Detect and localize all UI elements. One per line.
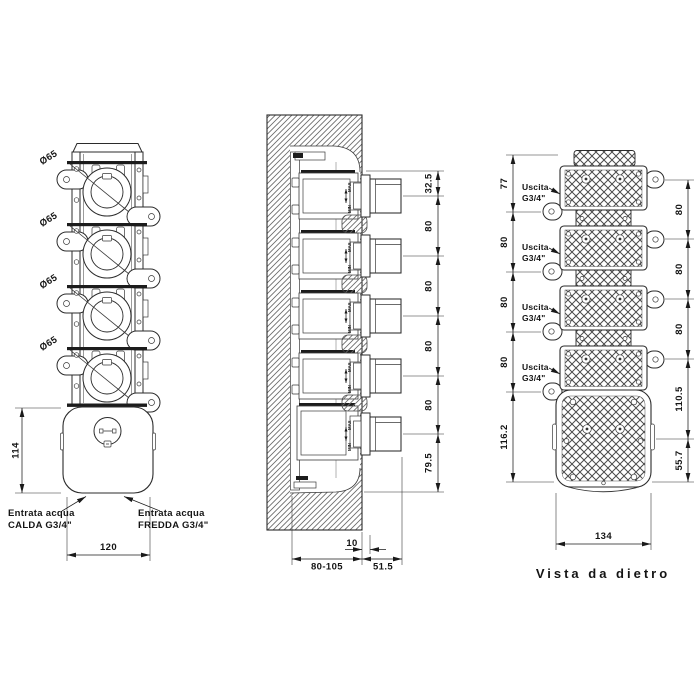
svg-text:G3/4": G3/4" <box>522 193 545 203</box>
svg-text:51.5: 51.5 <box>373 562 393 573</box>
svg-text:116.2: 116.2 <box>499 424 510 449</box>
svg-text:MIN: MIN <box>347 265 352 273</box>
svg-text:80: 80 <box>499 356 510 367</box>
drawing-page: Ø65 Ø65 Ø65 Ø65 114 120 Entrata acqua CA… <box>0 0 700 700</box>
svg-text:134: 134 <box>595 531 612 542</box>
svg-text:MIN: MIN <box>347 443 352 451</box>
svg-text:80: 80 <box>424 340 435 351</box>
rear-body <box>543 151 664 492</box>
svg-text:110.5: 110.5 <box>674 386 685 412</box>
valve-internals <box>291 152 362 490</box>
svg-text:32.5: 32.5 <box>424 173 435 193</box>
svg-text:80: 80 <box>424 280 435 291</box>
svg-text:MAX: MAX <box>347 362 352 372</box>
dimension-114: 114 <box>11 408 62 493</box>
thermostat-body-front <box>61 407 156 493</box>
svg-text:Uscita: Uscita <box>522 242 549 252</box>
svg-text:80: 80 <box>424 220 435 231</box>
rear-view: Uscita G3/4" Uscita G3/4" Uscita G3/4" U… <box>499 151 694 582</box>
dim-label: 120 <box>100 542 117 553</box>
svg-text:79.5: 79.5 <box>424 453 435 473</box>
svg-text:80-105: 80-105 <box>311 562 343 573</box>
svg-text:80: 80 <box>674 263 685 274</box>
svg-text:MIN: MIN <box>347 205 352 213</box>
svg-text:10: 10 <box>346 538 357 549</box>
svg-text:80: 80 <box>424 399 435 410</box>
dimension-chain-rear-right: 80 80 80 110.5 55.7 <box>652 180 694 482</box>
svg-text:CALDA G3/4": CALDA G3/4" <box>8 520 72 531</box>
svg-text:Entrata acqua: Entrata acqua <box>138 508 205 519</box>
svg-text:MIN: MIN <box>347 385 352 393</box>
dim-label: 114 <box>11 442 22 459</box>
svg-text:77: 77 <box>499 178 510 189</box>
svg-text:FREDDA G3/4": FREDDA G3/4" <box>138 520 209 531</box>
section-view: MAX MIN MAX MIN MAX MIN MAX MIN MAX MIN <box>267 115 444 573</box>
svg-text:Uscita: Uscita <box>522 362 549 372</box>
svg-text:MAX: MAX <box>347 182 352 192</box>
svg-text:80: 80 <box>499 296 510 307</box>
dia-label: Ø65 <box>38 210 60 230</box>
svg-text:MAX: MAX <box>347 302 352 312</box>
dia-label: Ø65 <box>38 334 60 354</box>
svg-text:80: 80 <box>499 236 510 247</box>
svg-text:MAX: MAX <box>347 242 352 252</box>
svg-text:G3/4": G3/4" <box>522 253 545 263</box>
svg-text:Uscita: Uscita <box>522 302 549 312</box>
svg-text:MAX: MAX <box>347 420 352 430</box>
svg-text:80: 80 <box>674 204 685 215</box>
svg-text:MIN: MIN <box>347 325 352 333</box>
svg-text:80: 80 <box>674 323 685 334</box>
svg-text:Uscita: Uscita <box>522 182 549 192</box>
front-view: Ø65 Ø65 Ø65 Ø65 114 120 Entrata acqua CA… <box>8 144 209 562</box>
dimension-134: 134 <box>556 493 651 550</box>
technical-drawing: Ø65 Ø65 Ø65 Ø65 114 120 Entrata acqua CA… <box>0 0 700 700</box>
svg-text:55.7: 55.7 <box>674 450 685 470</box>
inlet-cold-label: Entrata acqua FREDDA G3/4" <box>124 497 209 532</box>
dia-label: Ø65 <box>38 272 60 292</box>
svg-text:G3/4": G3/4" <box>522 313 545 323</box>
svg-text:Entrata acqua: Entrata acqua <box>8 508 75 519</box>
svg-text:G3/4": G3/4" <box>522 373 545 383</box>
view-caption: Vista da dietro <box>536 566 670 581</box>
inlet-hot-label: Entrata acqua CALDA G3/4" <box>8 497 86 532</box>
dia-label: Ø65 <box>38 148 60 168</box>
